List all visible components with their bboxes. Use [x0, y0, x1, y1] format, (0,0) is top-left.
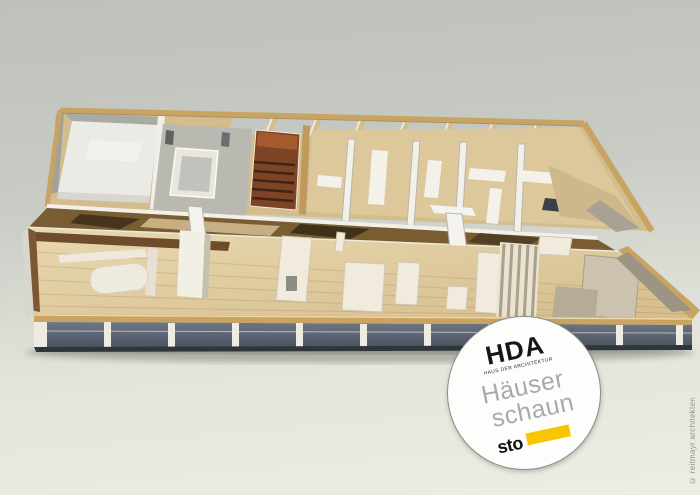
badge-content: HDA HAUS DER ARCHITEKTUR Häuser schaun s… — [466, 328, 581, 459]
sto-yellow-bar — [526, 424, 572, 445]
photo-architectural-model: HDA HAUS DER ARCHITEKTUR Häuser schaun s… — [0, 0, 700, 495]
sto-logo: sto — [496, 434, 525, 457]
badge-title: Häuser schaun — [474, 366, 576, 433]
front-facade — [34, 314, 692, 352]
photo-credit: © reitmayr architekten — [688, 397, 697, 485]
